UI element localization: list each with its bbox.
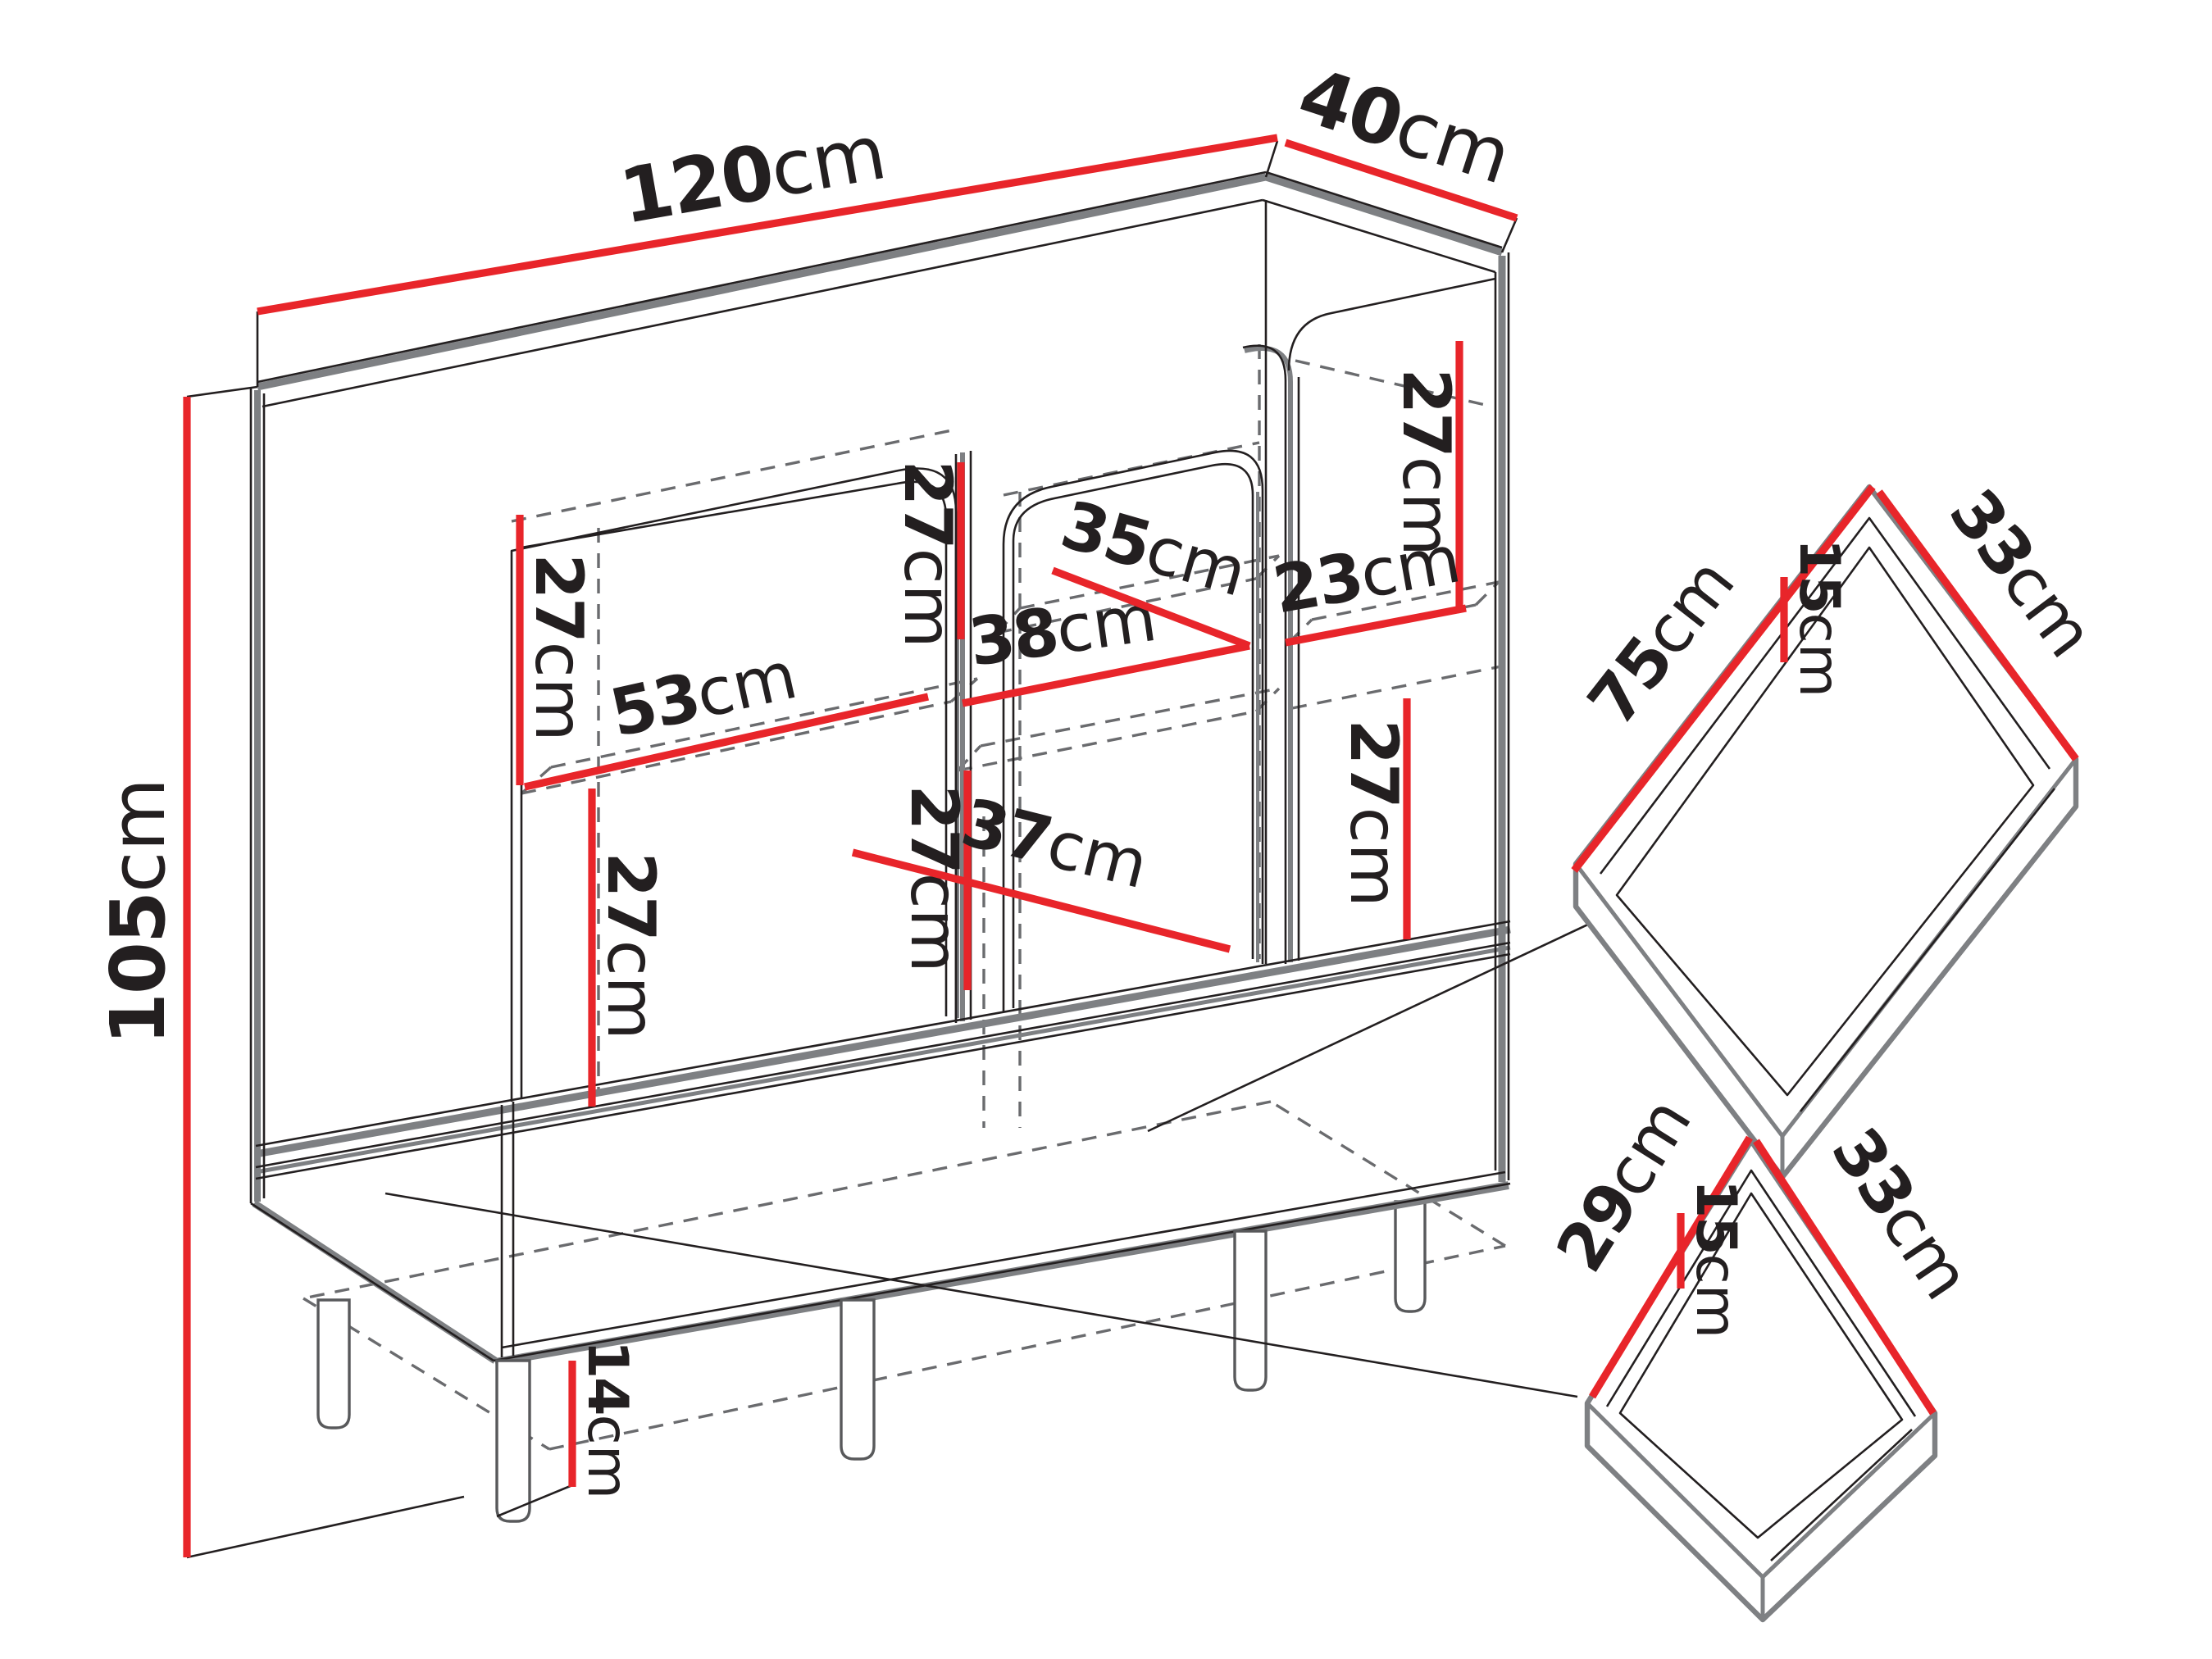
cabinet-outline-part <box>494 1184 1510 1361</box>
leg-front-middle <box>841 1300 874 1459</box>
dimension-diagram: 120cm40cm105cm14cm27cm27cm27cm27cm27cm27… <box>0 0 2212 1659</box>
dimension-label-cabinet-width-part: cm <box>764 108 893 215</box>
cabinet-dashed-interior-part <box>303 1102 1271 1298</box>
cabinet-outline-part <box>256 954 1510 1179</box>
cabinet-dashed-interior-part <box>1292 666 1505 708</box>
dimension-label-drawer-small-height: 15cm <box>1683 1179 1748 1339</box>
dimension-label-compartment-middle-upper-width-part: cm <box>1138 511 1255 611</box>
cabinet-outline-part <box>1289 279 1495 370</box>
dimension-label-compartment-bottom-width-part: cm <box>1040 805 1155 903</box>
dimension-label-cabinet-height-part: 105 <box>94 893 182 1045</box>
leader-lines-part <box>1502 218 1517 252</box>
cabinet-gray-edges <box>254 177 1510 1362</box>
dimension-label-cabinet-height: 105cm <box>94 778 182 1045</box>
dimension-label-drawer-large-height-part: cm <box>1786 613 1851 698</box>
leg-front-left <box>497 1361 530 1521</box>
dimension-label-shelf-left-lower-part: cm <box>593 940 669 1040</box>
dimension-label-drawer-small-height-part: 15 <box>1683 1179 1748 1254</box>
dimension-label-drawer-large-height-part: 15 <box>1786 539 1851 613</box>
cabinet-gray-edges-part <box>256 929 1510 1154</box>
dimension-label-shelf-left-upper-part: 27 <box>521 553 597 641</box>
cabinet-outline-part <box>256 921 1510 1146</box>
cabinet-gray-edges-part <box>256 948 1510 1172</box>
dimension-label-compartment-right-width-part: cm <box>1354 520 1466 613</box>
dimension-label-cabinet-width: 120cm <box>614 108 893 241</box>
cabinet-gray-edges-part <box>495 1185 1509 1362</box>
dimension-label-shelf-middle-upper-part: cm <box>890 548 966 648</box>
dimension-label-compartment-left-width-part: 53 <box>603 658 706 752</box>
dimension-label-leg-height-part: cm <box>575 1415 639 1500</box>
leader-lines-part <box>1266 141 1277 177</box>
leg-front-right <box>1235 1231 1266 1390</box>
dimension-label-shelf-left-lower-part: 27 <box>593 852 669 939</box>
cabinet-outline-part <box>502 1172 1505 1348</box>
dimension-label-shelf-right-lower: 27cm <box>1336 719 1412 907</box>
dimension-label-shelf-right-upper-part: 27 <box>1388 368 1464 456</box>
dimension-label-leg-height: 14cm <box>575 1340 639 1499</box>
leader-lines-part <box>187 1497 464 1557</box>
dimension-label-shelf-middle-lower-part: cm <box>896 873 972 973</box>
dimension-label-compartment-middle-lower-width-part: 38 <box>964 593 1062 681</box>
dimension-label-shelf-left-lower: 27cm <box>593 852 669 1039</box>
dimension-label-drawer-small-height-part: cm <box>1683 1254 1748 1339</box>
dimension-label-shelf-left-upper-part: cm <box>521 642 597 742</box>
cabinet-dashed-interior-part <box>981 689 1279 746</box>
leader-lines-part <box>187 387 257 397</box>
leg-back-left <box>318 1300 349 1428</box>
dimension-label-compartment-right-width-part: 23 <box>1268 538 1368 628</box>
dimension-label-shelf-left-upper: 27cm <box>521 553 597 741</box>
dimension-label-shelf-right-lower-part: cm <box>1336 807 1412 907</box>
cabinet-outline-part <box>251 1203 494 1361</box>
dimension-label-shelf-middle-upper: 27cm <box>890 460 966 648</box>
cabinet-dashed-interior-part <box>549 1246 1505 1449</box>
leg-back-right <box>1395 1202 1425 1311</box>
dimension-label-shelf-right-lower-part: 27 <box>1336 719 1412 807</box>
cabinet-outline-part <box>262 200 1263 407</box>
dimension-label-leg-height-part: 14 <box>575 1340 639 1415</box>
dimension-label-drawer-large-height: 15cm <box>1786 539 1851 698</box>
dimension-label-shelf-middle-upper-part: 27 <box>890 460 966 548</box>
dimension-label-cabinet-height-part: cm <box>94 778 182 893</box>
